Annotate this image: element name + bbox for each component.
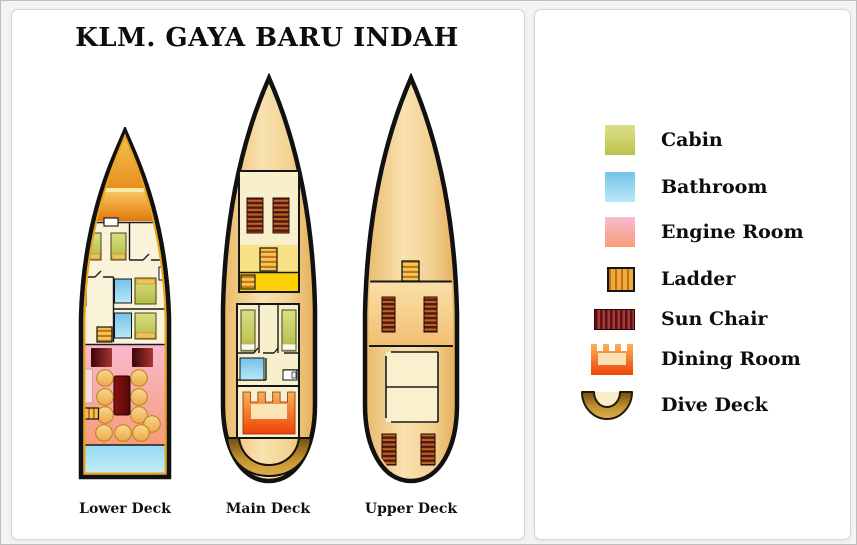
ladder-icon [402,261,419,281]
sun-chair-icon [594,309,635,330]
engine-room-icon [605,217,635,247]
page-title: KLM. GAYA BARU INDAH [11,23,523,53]
sun-chair-icon [273,198,289,233]
main-deck-label: Main Deck [226,501,310,517]
door [104,218,118,226]
legend-label-dive-deck: Dive Deck [661,393,768,417]
sun-chair-icon [424,297,437,332]
cabin-bed [111,233,126,260]
main-deck-plan [213,73,325,491]
ladder-icon [97,327,112,342]
bathroom-area [115,279,132,303]
lower-deck-label: Lower Deck [79,501,171,517]
ladder-icon [84,408,99,419]
cabin-bed [282,310,296,351]
upper-deck-label: Upper Deck [365,501,457,517]
sun-chair-icon [247,198,263,233]
legend-label-ladder: Ladder [661,267,735,291]
bathroom-area [240,358,264,380]
stern-bathroom-area [81,445,169,477]
legend-label-cabin: Cabin [661,128,723,152]
bathroom-icon [605,172,635,202]
sun-chair-icon [382,434,396,465]
dining-table [114,376,130,415]
legend-label-bathroom: Bathroom [661,175,767,199]
dining-structure [237,386,299,438]
deck-room [386,352,438,422]
bathroom-area [115,313,132,338]
legend-label-dining-room: Dining Room [661,347,801,371]
legend-label-engine-room: Engine Room [661,220,804,244]
ladder-icon [607,267,635,292]
cabin-structure [237,304,299,386]
sink [292,372,296,378]
sun-chair-icon [382,297,395,332]
cabin-bed [135,278,156,304]
dive-deck-icon [579,389,635,422]
lower-deck-plan [75,127,175,489]
cabin-bed [241,310,255,351]
cabin-icon [605,125,635,155]
dining-room-icon [591,344,633,375]
upper-deck-plan [358,73,464,491]
sun-deck-area [365,282,457,346]
ladder-icon [260,248,277,271]
legend-label-sun-chair: Sun Chair [661,307,767,331]
deck-plan-page: KLM. GAYA BARU INDAH [0,0,857,545]
ladder-icon [241,275,255,289]
engine-block [91,348,112,367]
bow-strip [81,188,169,192]
sun-chair-icon [421,434,435,465]
bridge-structure [239,171,299,292]
engine-block [132,348,153,367]
bench [85,369,93,403]
cabin-bed [135,313,156,339]
